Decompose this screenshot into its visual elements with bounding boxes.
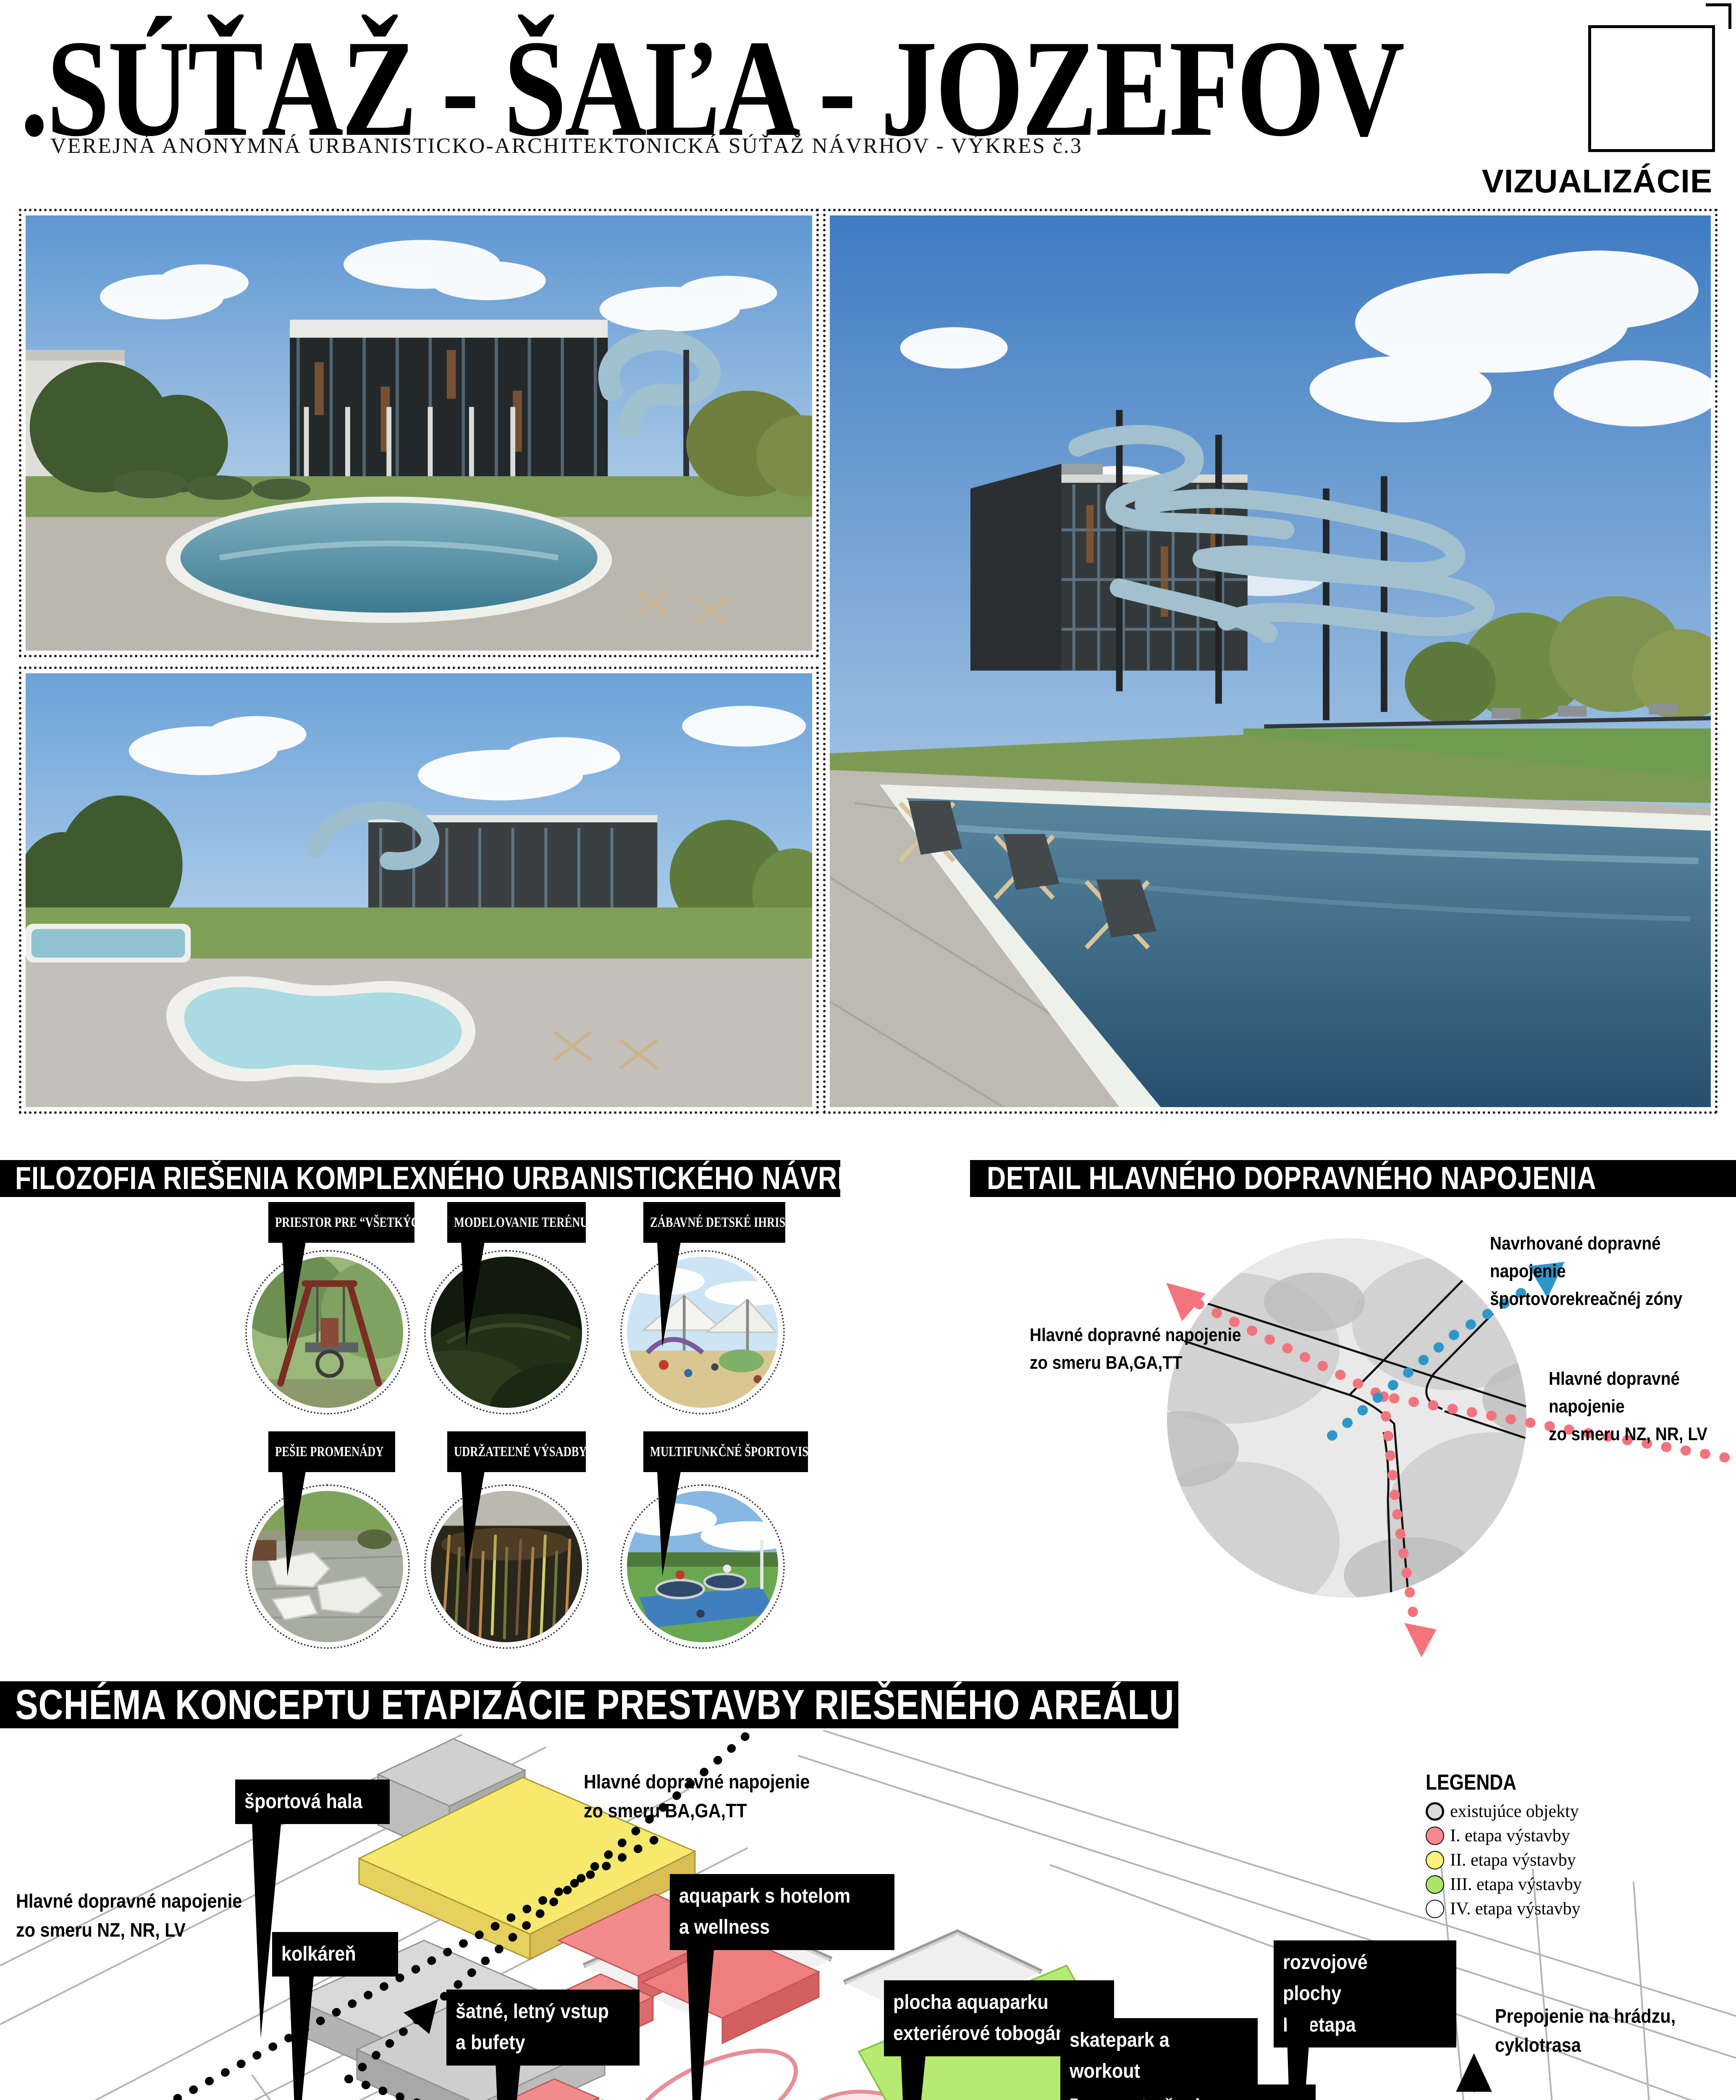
legend-item-stage4: IV. etapa výstavby <box>1426 1897 1694 1921</box>
legend-swatch-existing-icon <box>1426 1802 1444 1821</box>
concept-photo-priestor <box>252 1257 403 1408</box>
page-subtitle: VEREJNÁ ANONYMNÁ URBANISTICKO-ARCHITEKTO… <box>50 135 1083 157</box>
legend-swatch-stage2-icon <box>1426 1851 1444 1869</box>
visualization-pool-building <box>19 209 819 657</box>
render-scene-1 <box>26 215 812 651</box>
concept-circle-teren <box>424 1250 589 1415</box>
concept-circle-promenady <box>245 1484 410 1649</box>
concept-photo-vysadby <box>431 1491 582 1642</box>
section-bar-schema: SCHÉMA KONCEPTU ETAPIZÁCIE PRESTAVBY RIE… <box>0 1681 1178 1728</box>
render-scene-3 <box>830 215 1711 1107</box>
legend-item-stage2: II. etapa výstavby <box>1426 1848 1694 1872</box>
concept-label-teren: MODELOVANIE TERÉNU <box>447 1202 586 1243</box>
concept-photo-promenady <box>252 1491 403 1642</box>
section-bar-filozofia: FILOZOFIA RIEŠENIA KOMPLEXNÉHO URBANISTI… <box>0 1160 840 1197</box>
callout-sportova-hala: športová hala <box>235 1780 390 1824</box>
callout-aquapark-hotel: aquapark s hotelom a wellness <box>670 1874 894 1950</box>
concept-photo-teren <box>431 1257 582 1408</box>
concept-circle-priestor <box>245 1250 410 1415</box>
competition-id-box <box>1588 25 1715 152</box>
concept-label-vysadby: UDRŽATEĽNÉ VÝSADBY <box>447 1431 586 1472</box>
schema-annotation-nz-nr-lv: Hlavné dopravné napojenie zo smeru NZ, N… <box>16 1887 242 1945</box>
map-annotation-nz-nr-lv: Hlavné dopravné napojenie zo smeru NZ, N… <box>1549 1365 1713 1448</box>
visualization-slides-pool <box>823 209 1718 1114</box>
callout-pointer <box>496 2061 521 2100</box>
concept-label-promenady: PEŠIE PROMENÁDY <box>268 1431 395 1472</box>
concept-circle-sportovisko <box>620 1484 785 1649</box>
poster-sheet: .SÚŤAŽ - ŠAĽA - JOZEFOV VEREJNÁ ANONYMNÁ… <box>0 0 1736 2100</box>
legend-swatch-stage1-icon <box>1426 1827 1444 1845</box>
section-title-filozofia: FILOZOFIA RIEŠENIA KOMPLEXNÉHO URBANISTI… <box>15 1163 876 1194</box>
concept-label-priestor: PRIESTOR PRE “VŠETKÝCH” <box>268 1202 414 1243</box>
section-bar-detail: DETAIL HLAVNÉHO DOPRAVNÉHO NAPOJENIA m 1… <box>970 1160 1736 1197</box>
corner-mark-icon <box>1706 3 1731 29</box>
legend: LEGENDA existujúce objekty I. etapa výst… <box>1426 1772 1694 1921</box>
section-title-schema: SCHÉMA KONCEPTU ETAPIZÁCIE PRESTAVBY RIE… <box>15 1684 1174 1726</box>
concept-circle-vysadby <box>424 1484 589 1649</box>
visualization-kidney-pool <box>19 667 819 1114</box>
callout-prestresenie: prestrešenie zimného štadiónu <box>1093 2084 1316 2100</box>
legend-item-existing: existujúce objekty <box>1426 1799 1694 1824</box>
callout-satne-vstup: šatné, letný vstup a bufety <box>446 1990 640 2066</box>
map-annotation-ba-ga-tt: Hlavné dopravné napojenie zo smeru BA,GA… <box>1030 1321 1241 1377</box>
concept-circle-ihrisko <box>620 1250 785 1415</box>
legend-item-stage1: I. etapa výstavby <box>1426 1824 1694 1848</box>
legend-title: LEGENDA <box>1426 1772 1654 1793</box>
callout-kolkaren: kolkáreň <box>272 1932 398 1977</box>
legend-item-stage3: III. etapa výstavby <box>1426 1872 1694 1897</box>
section-title-detail: DETAIL HLAVNÉHO DOPRAVNÉHO NAPOJENIA <box>987 1163 1596 1194</box>
sheet-label: VIZUALIZÁCIE <box>1277 165 1712 197</box>
concept-label-ihrisko: ZÁBAVNÉ DETSKÉ IHRISKO <box>643 1202 785 1243</box>
render-scene-2 <box>26 673 812 1107</box>
legend-swatch-stage3-icon <box>1426 1875 1444 1894</box>
concept-label-sportovisko: MULTIFUNKČNÉ ŠPORTOVISKO <box>643 1431 808 1472</box>
schema-annotation-prepojenie: Prepojenie na hrádzu, cyklotrasa <box>1495 2002 1676 2060</box>
map-annotation-navrhovane: Navrhované dopravné napojenie športovore… <box>1490 1230 1707 1313</box>
concept-photo-sportovisko <box>627 1491 778 1642</box>
concept-photo-ihrisko <box>627 1257 778 1408</box>
legend-swatch-stage4-icon <box>1426 1900 1444 1918</box>
schema-annotation-ba-ga-tt: Hlavné dopravné napojenie zo smeru BA,GA… <box>584 1767 810 1825</box>
